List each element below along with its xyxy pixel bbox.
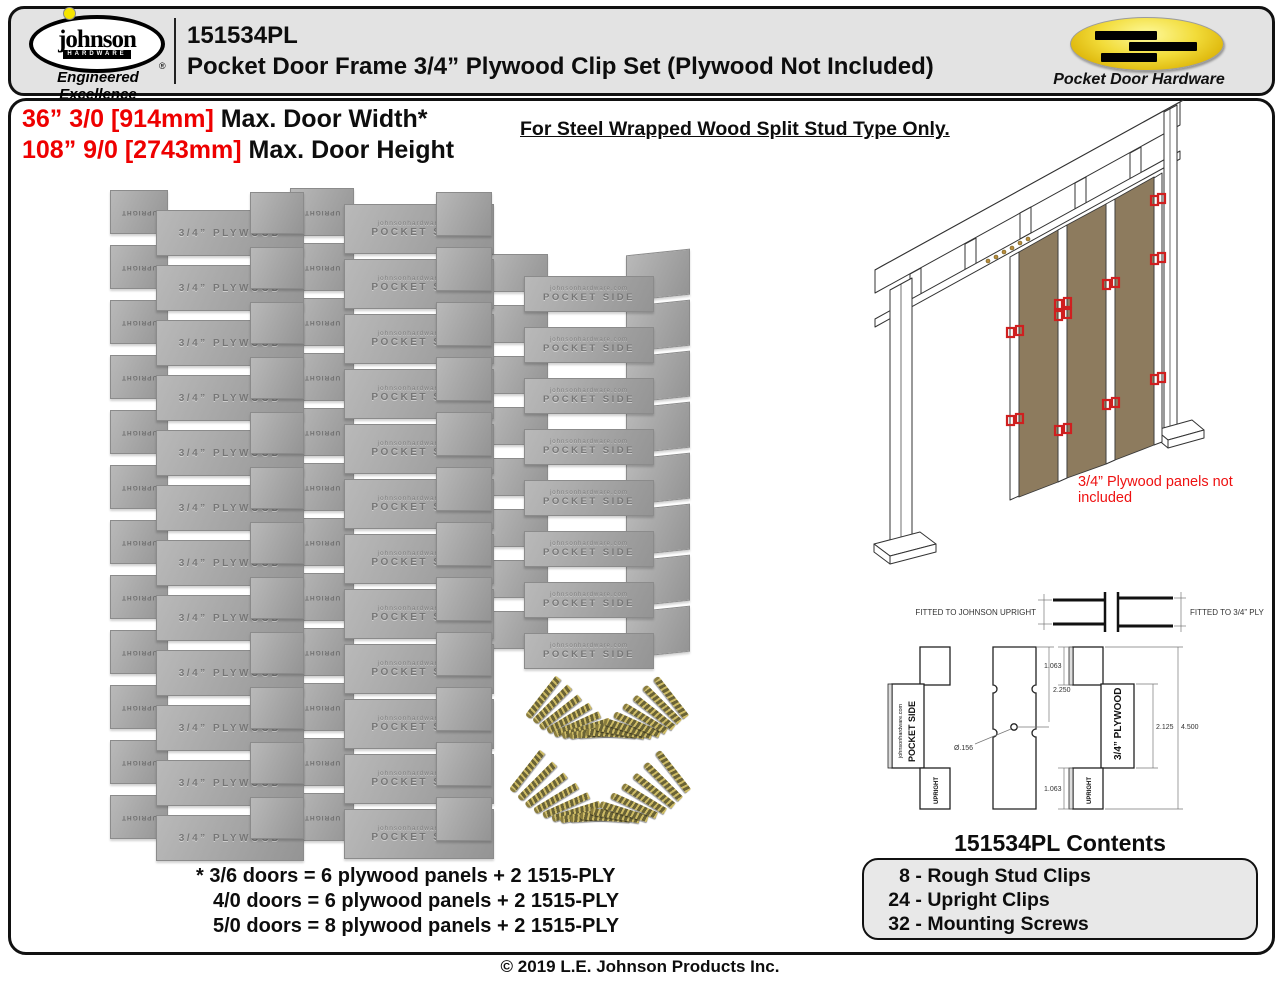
contents-item: 24 - Upright Clips [864, 888, 1256, 912]
door-bar-icon [1129, 42, 1197, 51]
clip-tab [436, 742, 492, 786]
johnson-logo-dot-icon [63, 7, 76, 20]
clip-body: johnsonhardware.comPOCKET SIDE [524, 276, 654, 312]
clip-body: johnsonhardware.comPOCKET SIDE [524, 480, 654, 516]
max-width-label: Max. Door Width* [214, 105, 428, 133]
contents-label: Mounting Screws [927, 913, 1088, 935]
clip-tab [436, 357, 492, 401]
contents-sep: - [910, 865, 927, 887]
clip-tab [250, 302, 304, 344]
clip-tab [250, 632, 304, 674]
clip-stamp: POCKET SIDE [543, 649, 635, 660]
max-door-width: 36” 3/0 [914mm] Max. Door Width* [22, 104, 454, 135]
contents-item: 32 - Mounting Screws [864, 912, 1256, 936]
header-titles: 151534PL Pocket Door Frame 3/4” Plywood … [187, 20, 934, 82]
max-door-height: 108” 9/0 [2743mm] Max. Door Height [22, 135, 454, 166]
contents-title: 151534PL Contents [862, 830, 1258, 857]
part-number: 151534PL [187, 20, 934, 51]
clip-body: johnsonhardware.comPOCKET SIDE [524, 531, 654, 567]
clip-tab [436, 302, 492, 346]
clip-tab [436, 412, 492, 456]
door-footnotes: * 3/6 doors = 6 plywood panels + 2 1515-… [196, 864, 619, 939]
contents-sep: - [910, 913, 927, 935]
clip-body: johnsonhardware.comPOCKET SIDE [524, 378, 654, 414]
spec-lines: 36” 3/0 [914mm] Max. Door Width* 108” 9/… [22, 104, 454, 166]
footnote-line: * 3/6 doors = 6 plywood panels + 2 1515-… [196, 864, 619, 889]
dim-hole: Ø.156 [954, 745, 973, 752]
rough-clip-photo: johnsonhardware.comPOCKET SIDE [484, 252, 690, 310]
clip-tab [436, 632, 492, 676]
footnote-line: 4/0 doors = 6 plywood panels + 2 1515-PL… [196, 889, 619, 914]
dim-center: 2.250 [1053, 687, 1071, 694]
clip-tab [436, 522, 492, 566]
clip-tab [250, 577, 304, 619]
clip-tab [250, 192, 304, 234]
clip-stamp: POCKET SIDE [543, 547, 635, 558]
clip-tab [436, 797, 492, 841]
fit-left-label: FITTED TO JOHNSON UPRIGHT [915, 608, 1036, 617]
contents-qty: 8 [880, 864, 910, 888]
clip-tab [436, 687, 492, 731]
clip-column-plywood: UPRIGHT3/4” PLYWOODUPRIGHT3/4” PLYWOODUP… [108, 190, 304, 920]
contents-box: 8 - Rough Stud Clips 24 - Upright Clips … [862, 858, 1258, 940]
screw-fan-bottom [498, 760, 696, 854]
pocket-door-frame-illustration [860, 100, 1238, 578]
door-bar-icon [1095, 31, 1157, 40]
max-height-value: 108” 9/0 [2743mm] [22, 136, 242, 164]
diagram-pocket-side-label: POCKET SIDE [907, 701, 917, 762]
contents-label: Rough Stud Clips [927, 865, 1091, 887]
product-sheet: johnson HARDWARE ® Engineered Excellence… [0, 0, 1280, 989]
contents-item: 8 - Rough Stud Clips [864, 864, 1256, 888]
door-bar-icon [1101, 53, 1157, 62]
clip-tab [250, 522, 304, 564]
johnson-logo-subbrand: HARDWARE [63, 50, 130, 59]
clip-tab [436, 247, 492, 291]
clip-stamp: POCKET SIDE [543, 343, 635, 354]
clip-tab [250, 467, 304, 509]
clip-stamp: POCKET SIDE [543, 598, 635, 609]
diagram-upright-label-right: UPRIGHT [1087, 777, 1093, 804]
clip-tab [436, 467, 492, 511]
fit-right-label: FITTED TO 3/4” PLY [1190, 608, 1264, 617]
clip-tab [250, 742, 304, 784]
dim-total: 4.500 [1181, 724, 1199, 731]
clip-tab [250, 412, 304, 454]
dim-bottom-tab: 1.063 [1044, 786, 1062, 793]
dim-body: 2.125 [1156, 724, 1174, 731]
clip-body: johnsonhardware.comPOCKET SIDE [524, 633, 654, 669]
clip-body: johnsonhardware.comPOCKET SIDE [524, 327, 654, 363]
contents-sep: - [910, 889, 927, 911]
contents-qty: 32 [880, 912, 910, 936]
pocket-door-hardware-caption: Pocket Door Hardware [1024, 71, 1254, 89]
product-title: Pocket Door Frame 3/4” Plywood Clip Set … [187, 51, 934, 82]
footnote-line: 5/0 doors = 8 plywood panels + 2 1515-PL… [196, 914, 619, 939]
johnson-logo-oval: johnson HARDWARE [29, 15, 165, 73]
contents-qty: 24 [880, 888, 910, 912]
pocket-door-hardware-logo: Pocket Door Hardware [1024, 13, 1254, 89]
max-width-value: 36” 3/0 [914mm] [22, 105, 214, 133]
clip-column-rough: johnsonhardware.comPOCKET SIDEjohnsonhar… [484, 252, 690, 672]
header-divider [174, 18, 176, 84]
johnson-logo: johnson HARDWARE ® Engineered Excellence [23, 13, 173, 89]
johnson-logo-brand: johnson [58, 30, 136, 50]
clip-stamp: POCKET SIDE [543, 394, 635, 405]
clip-body: johnsonhardware.comPOCKET SIDE [524, 429, 654, 465]
clip-stamp: POCKET SIDE [543, 292, 635, 303]
diagram-plywood-label: 3/4” PLYWOOD [1113, 688, 1124, 760]
clip-tab [250, 797, 304, 839]
pocket-door-hardware-oval-icon [1070, 17, 1224, 71]
clip-body: johnsonhardware.comPOCKET SIDE [524, 582, 654, 618]
clip-tab [436, 192, 492, 236]
max-height-label: Max. Door Height [242, 136, 455, 164]
copyright: © 2019 L.E. Johnson Products Inc. [0, 957, 1280, 977]
plywood-not-included-note: 3/4” Plywood panels not included [1078, 474, 1280, 506]
clip-tab [250, 687, 304, 729]
header: johnson HARDWARE ® Engineered Excellence… [8, 6, 1275, 96]
dim-top-tab: 1.063 [1044, 663, 1062, 670]
diagram-site-label: johnsonhardware.com [898, 703, 904, 759]
clip-tab [250, 247, 304, 289]
diagram-upright-label-left: UPRIGHT [934, 777, 940, 804]
clip-tab [436, 577, 492, 621]
clip-stamp: POCKET SIDE [543, 445, 635, 456]
clip-stamp: POCKET SIDE [543, 496, 635, 507]
clip-dimension-diagram: FITTED TO JOHNSON UPRIGHT FITTED TO 3/4”… [868, 572, 1268, 830]
clip-column-pocket: UPRIGHTjohnsonhardware.comPOCKET SIDEUPR… [290, 188, 492, 920]
clip-tab [250, 357, 304, 399]
contents-label: Upright Clips [927, 889, 1049, 911]
